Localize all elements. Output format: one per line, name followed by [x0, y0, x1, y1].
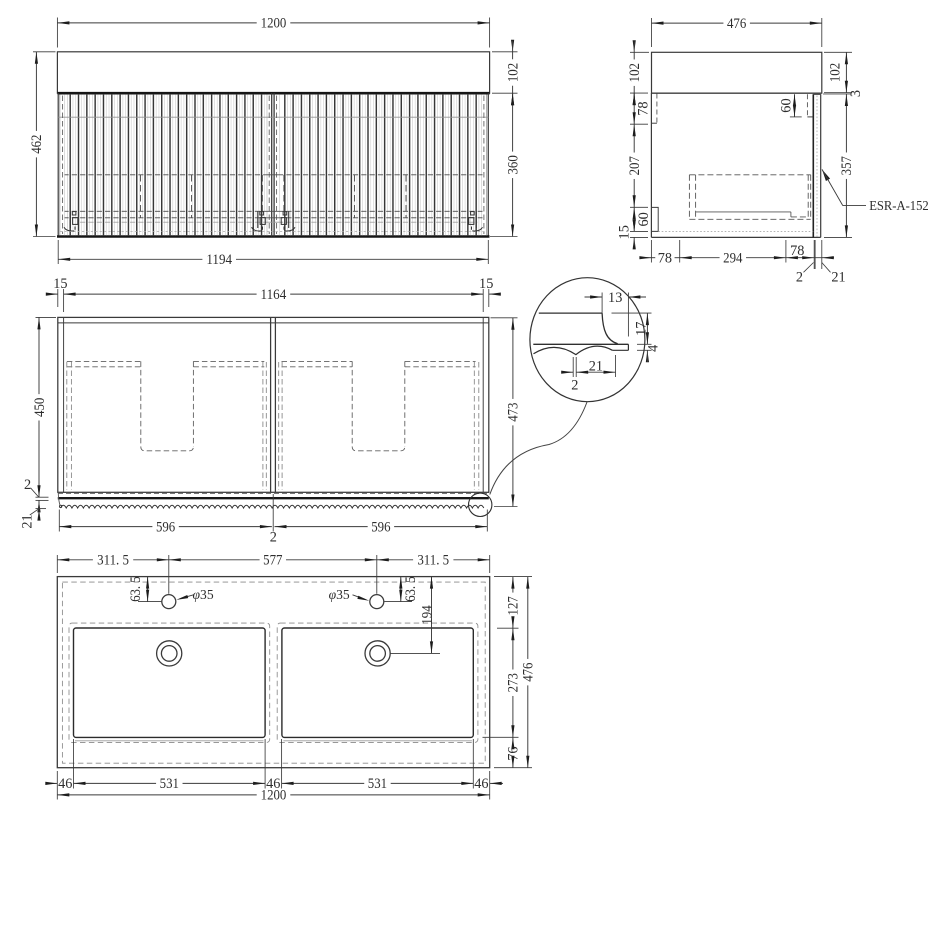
svg-text:273: 273 [506, 673, 522, 692]
svg-text:78: 78 [636, 102, 652, 116]
svg-text:2: 2 [24, 477, 31, 493]
svg-text:1194: 1194 [206, 252, 232, 268]
svg-text:21: 21 [20, 514, 36, 528]
svg-text:2: 2 [270, 530, 277, 546]
svg-text:596: 596 [156, 519, 175, 535]
svg-text:531: 531 [368, 776, 387, 792]
svg-text:311. 5: 311. 5 [417, 553, 449, 569]
svg-text:46: 46 [58, 776, 72, 792]
svg-text:311. 5: 311. 5 [97, 553, 129, 569]
svg-text:4: 4 [646, 345, 662, 352]
svg-text:φ35: φ35 [193, 587, 214, 602]
svg-text:63. 5: 63. 5 [128, 576, 144, 601]
svg-text:21: 21 [589, 359, 603, 375]
svg-text:102: 102 [505, 63, 521, 82]
svg-text:357: 357 [839, 156, 855, 175]
svg-text:294: 294 [723, 250, 742, 266]
svg-text:1164: 1164 [261, 287, 287, 303]
svg-text:13: 13 [608, 290, 622, 306]
svg-text:596: 596 [371, 519, 390, 535]
svg-text:473: 473 [506, 403, 522, 422]
svg-text:194: 194 [419, 605, 435, 624]
svg-text:15: 15 [53, 276, 67, 292]
svg-text:63. 5: 63. 5 [403, 576, 419, 601]
svg-text:78: 78 [658, 250, 672, 266]
svg-text:60: 60 [636, 212, 652, 226]
svg-text:207: 207 [627, 156, 643, 175]
svg-text:577: 577 [263, 553, 282, 569]
svg-text:60: 60 [779, 98, 795, 112]
svg-text:450: 450 [32, 398, 48, 417]
svg-text:2: 2 [796, 270, 803, 286]
svg-text:15: 15 [479, 276, 493, 292]
svg-text:127: 127 [506, 596, 522, 615]
svg-text:102: 102 [828, 63, 844, 82]
svg-text:ESR-A-152: ESR-A-152 [869, 198, 929, 213]
svg-text:476: 476 [727, 16, 746, 32]
svg-text:21: 21 [831, 270, 845, 286]
svg-text:1200: 1200 [261, 16, 287, 32]
svg-text:531: 531 [160, 776, 179, 792]
svg-text:462: 462 [29, 135, 45, 154]
svg-text:1200: 1200 [261, 788, 287, 804]
svg-text:3: 3 [848, 90, 864, 97]
svg-text:46: 46 [474, 776, 488, 792]
svg-text:476: 476 [521, 663, 537, 682]
svg-text:102: 102 [627, 63, 643, 82]
svg-text:15: 15 [617, 225, 633, 239]
svg-text:φ35: φ35 [329, 587, 350, 602]
svg-text:2: 2 [571, 378, 578, 394]
svg-text:360: 360 [505, 155, 521, 174]
